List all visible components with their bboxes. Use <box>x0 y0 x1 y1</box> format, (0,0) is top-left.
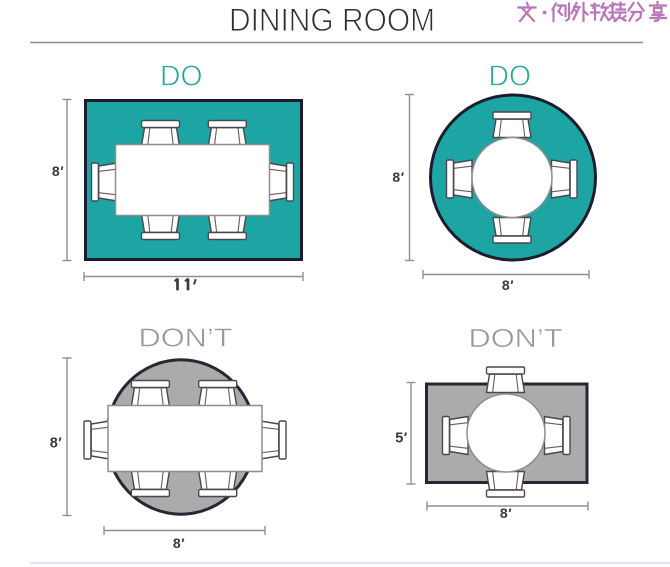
svg-text:DINING ROOM: DINING ROOM <box>229 2 435 38</box>
svg-text:8′: 8′ <box>500 505 512 521</box>
svg-text:8′: 8′ <box>50 436 63 452</box>
svg-text:DON’T: DON’T <box>469 325 563 353</box>
svg-text:8′: 8′ <box>173 535 185 551</box>
svg-text:DO: DO <box>489 61 532 93</box>
svg-text:5′: 5′ <box>395 431 408 447</box>
svg-text:DON’T: DON’T <box>139 325 233 353</box>
svg-text:8′: 8′ <box>392 169 404 185</box>
svg-text:8′: 8′ <box>52 163 64 179</box>
svg-text:8′: 8′ <box>502 277 514 293</box>
svg-text:DO: DO <box>160 61 203 93</box>
